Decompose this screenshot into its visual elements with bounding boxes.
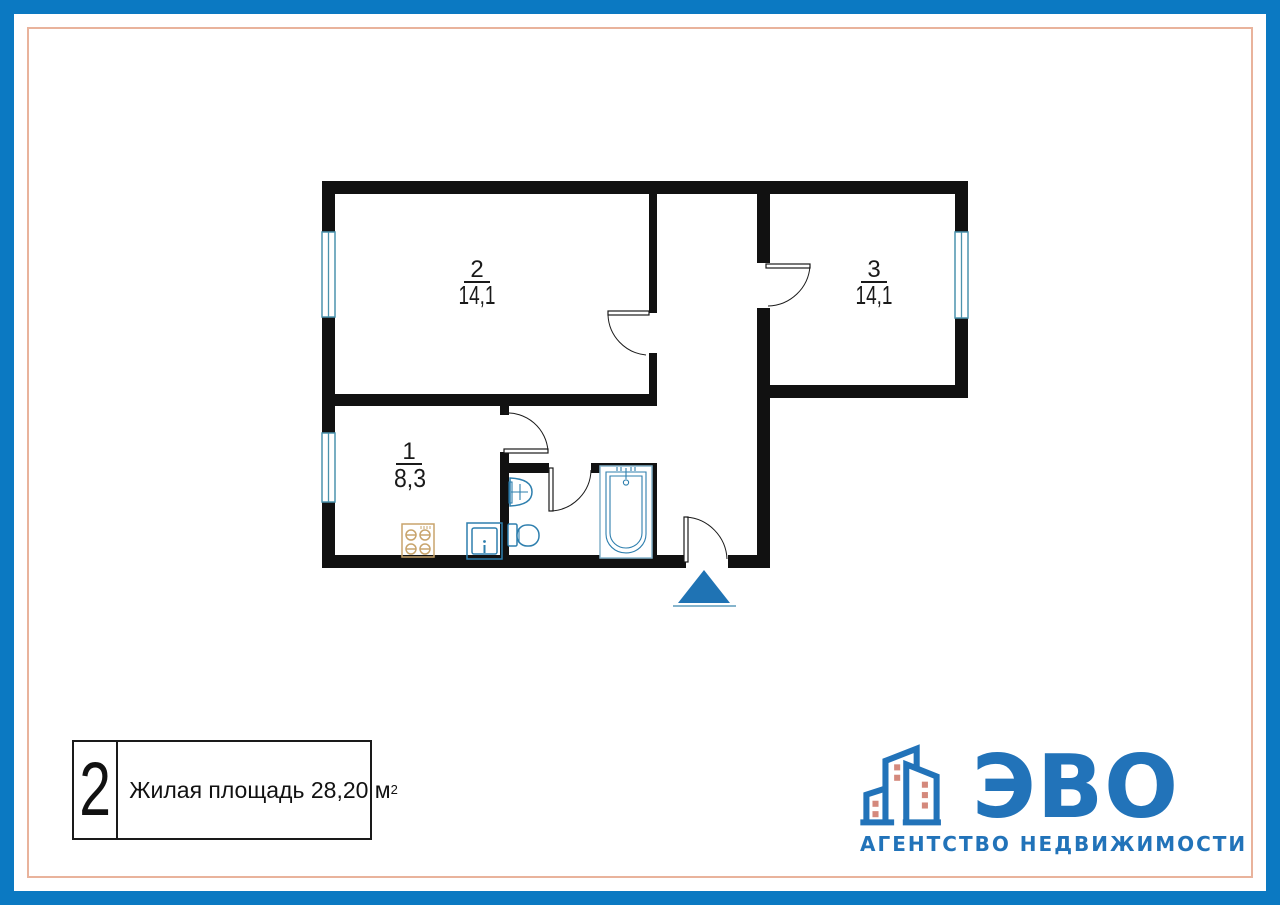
stove-icon xyxy=(402,524,434,557)
room2-area: 14,1 xyxy=(459,280,496,310)
window-room2 xyxy=(322,232,335,317)
fixtures xyxy=(402,466,652,559)
room3-label: 3 14,1 xyxy=(856,256,893,310)
door-entrance xyxy=(684,517,727,562)
room3-area: 14,1 xyxy=(856,280,893,310)
agency-logo: ЭВО АГЕНТСТВО НЕДВИЖИМОСТИ xyxy=(856,735,1226,865)
legend-rooms-count: 2 xyxy=(79,752,111,828)
door-kitchen xyxy=(504,413,548,453)
window-kitchen xyxy=(322,433,335,502)
bathtub-icon xyxy=(600,466,652,558)
toilet-icon xyxy=(508,524,539,546)
logo-name: ЭВО xyxy=(972,741,1179,833)
legend-box: 2 Жилая площадь 28,20 м2 xyxy=(72,740,372,840)
door-room3 xyxy=(766,264,810,306)
buildings-icon xyxy=(856,737,960,835)
room1-label: 1 8,3 xyxy=(394,438,426,493)
room2-label: 2 14,1 xyxy=(459,256,496,310)
legend-rooms-count-cell: 2 xyxy=(74,742,118,838)
legend-area-label: Жилая площадь 28,20 м xyxy=(129,777,390,804)
legend-area-cell: Жилая площадь 28,20 м2 xyxy=(118,742,398,838)
logo-subtitle: АГЕНТСТВО НЕДВИЖИМОСТИ xyxy=(860,832,1247,856)
room2-number: 2 xyxy=(470,256,483,283)
window-room3 xyxy=(955,232,968,318)
washbasin-icon xyxy=(509,478,532,506)
door-room2 xyxy=(608,311,649,355)
entrance-arrow-icon xyxy=(673,570,736,606)
room1-number: 1 xyxy=(402,438,415,465)
room1-area: 8,3 xyxy=(394,463,426,493)
room3-number: 3 xyxy=(867,256,880,283)
fridge-icon xyxy=(467,523,502,559)
room-labels: 1 8,3 2 14,1 3 14,1 xyxy=(394,256,893,493)
door-bathroom xyxy=(549,468,591,511)
